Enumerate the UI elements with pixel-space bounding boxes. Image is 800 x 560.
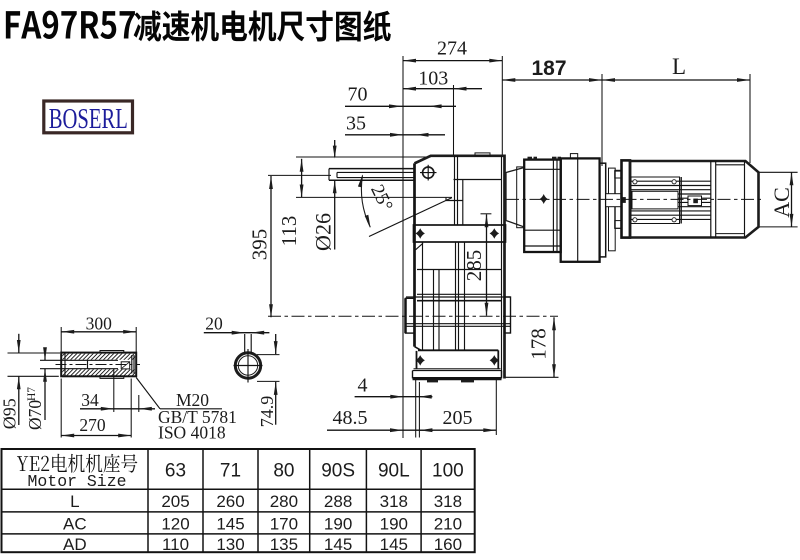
svg-text:AD: AD: [63, 535, 87, 554]
svg-text:Ø26: Ø26: [311, 213, 336, 251]
svg-text:63: 63: [165, 461, 186, 482]
svg-text:318: 318: [434, 492, 462, 511]
svg-text:274: 274: [437, 38, 467, 60]
svg-text:178: 178: [527, 328, 551, 360]
svg-text:48.5: 48.5: [333, 407, 368, 429]
svg-text:Motor Size: Motor Size: [27, 472, 126, 491]
svg-text:Ø95: Ø95: [0, 398, 20, 429]
svg-text:270: 270: [79, 415, 106, 435]
svg-text:280: 280: [270, 492, 298, 511]
svg-text:34: 34: [81, 390, 99, 410]
svg-text:35: 35: [346, 112, 366, 134]
svg-text:H7: H7: [26, 387, 38, 401]
svg-text:160: 160: [434, 535, 462, 554]
svg-text:110: 110: [162, 535, 189, 554]
svg-text:288: 288: [324, 492, 352, 511]
svg-text:AC: AC: [63, 514, 87, 533]
svg-text:80: 80: [273, 461, 294, 482]
svg-text:74.9: 74.9: [257, 396, 277, 428]
svg-text:205: 205: [161, 492, 189, 511]
svg-text:130: 130: [216, 535, 244, 554]
svg-text:285: 285: [462, 250, 486, 282]
svg-text:4: 4: [358, 375, 368, 397]
svg-text:BOSERL: BOSERL: [49, 104, 128, 135]
svg-text:ISO 4018: ISO 4018: [158, 423, 226, 443]
svg-text:103: 103: [418, 68, 448, 90]
svg-text:318: 318: [380, 492, 408, 511]
svg-text:100: 100: [432, 461, 464, 482]
svg-text:L: L: [70, 492, 79, 511]
svg-text:300: 300: [86, 314, 113, 334]
svg-text:120: 120: [161, 514, 189, 533]
svg-text:90L: 90L: [378, 461, 410, 482]
svg-text:205: 205: [443, 407, 473, 429]
svg-text:395: 395: [248, 229, 272, 261]
svg-text:187: 187: [531, 57, 566, 80]
svg-text:145: 145: [216, 514, 244, 533]
svg-text:145: 145: [380, 535, 408, 554]
svg-text:190: 190: [380, 514, 408, 533]
svg-text:145: 145: [324, 535, 352, 554]
svg-text:260: 260: [216, 492, 244, 511]
svg-text:71: 71: [220, 461, 241, 482]
svg-text:L: L: [672, 54, 686, 79]
svg-text:70: 70: [348, 84, 368, 106]
svg-text:AC: AC: [769, 187, 794, 218]
svg-text:113: 113: [277, 216, 301, 247]
svg-text:20: 20: [205, 314, 223, 334]
svg-text:190: 190: [324, 514, 352, 533]
svg-text:90S: 90S: [321, 461, 355, 482]
svg-text:135: 135: [270, 535, 298, 554]
svg-text:Ø70: Ø70: [25, 400, 45, 430]
svg-text:210: 210: [434, 514, 462, 533]
svg-text:170: 170: [270, 514, 298, 533]
